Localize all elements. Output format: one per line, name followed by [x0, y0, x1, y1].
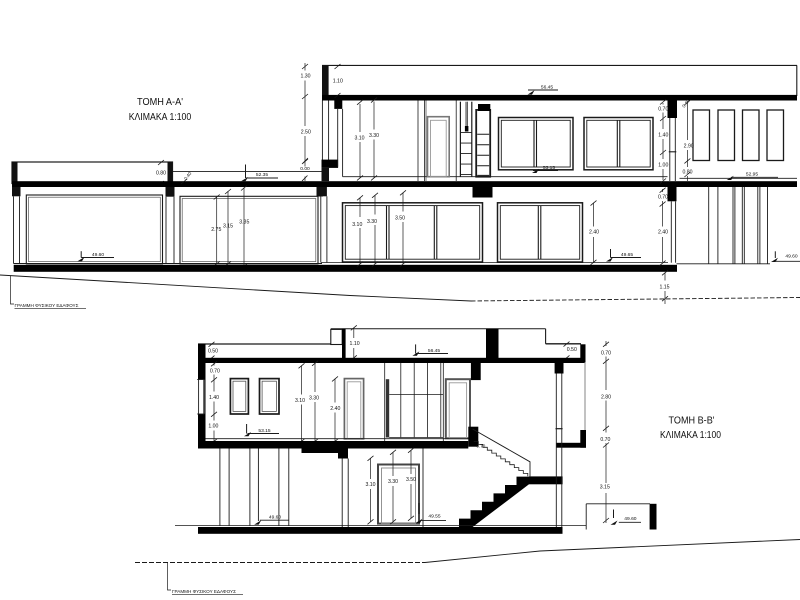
- svg-text:0.70: 0.70: [210, 368, 220, 374]
- svg-text:2.40: 2.40: [658, 229, 668, 235]
- svg-text:3.15: 3.15: [223, 223, 233, 229]
- svg-text:52.35: 52.35: [256, 172, 269, 178]
- svg-text:1.10: 1.10: [350, 341, 360, 347]
- svg-text:ΚΛΙΜΑΚΑ 1:100: ΚΛΙΜΑΚΑ 1:100: [129, 111, 192, 123]
- svg-text:ΓΡΑΜΜΗ ΦΥΣΙΚΟΥ ΕΔΑΦΟΥΣ: ΓΡΑΜΜΗ ΦΥΣΙΚΟΥ ΕΔΑΦΟΥΣ: [15, 303, 79, 308]
- svg-text:2.40: 2.40: [589, 229, 599, 235]
- svg-text:ΚΛΙΜΑΚΑ 1:100: ΚΛΙΜΑΚΑ 1:100: [660, 429, 721, 441]
- svg-text:3.30: 3.30: [367, 219, 377, 225]
- svg-text:1.40: 1.40: [658, 133, 668, 139]
- svg-text:2.90: 2.90: [684, 144, 694, 150]
- svg-text:1.00: 1.00: [208, 424, 218, 430]
- svg-text:52.95: 52.95: [746, 172, 759, 178]
- svg-text:0.00: 0.00: [300, 166, 310, 172]
- svg-text:3.35: 3.35: [239, 220, 249, 226]
- svg-text:3.30: 3.30: [369, 133, 379, 139]
- svg-text:3.10: 3.10: [354, 136, 364, 142]
- svg-text:ΤΟΜΗ Β-Β': ΤΟΜΗ Β-Β': [669, 415, 715, 427]
- svg-text:49.55: 49.55: [428, 513, 441, 519]
- svg-text:3.50: 3.50: [406, 477, 416, 483]
- svg-text:2.50: 2.50: [301, 130, 311, 136]
- svg-text:ΤΟΜΗ Α-Α': ΤΟΜΗ Α-Α': [137, 96, 183, 108]
- svg-text:0.50: 0.50: [567, 347, 577, 353]
- svg-text:49.60: 49.60: [92, 252, 105, 258]
- svg-text:49.65: 49.65: [621, 252, 634, 258]
- svg-text:3.15: 3.15: [600, 485, 610, 491]
- svg-text:3.10: 3.10: [365, 482, 375, 488]
- svg-text:49.60: 49.60: [785, 254, 798, 260]
- svg-text:56.45: 56.45: [428, 348, 441, 354]
- svg-text:0.70: 0.70: [658, 107, 668, 113]
- svg-text:1.40: 1.40: [209, 395, 219, 401]
- svg-text:ΓΡΑΜΜΗ ΦΥΣΙΚΟΥ ΕΔΑΦΟΥΣ: ΓΡΑΜΜΗ ΦΥΣΙΚΟΥ ΕΔΑΦΟΥΣ: [172, 589, 236, 594]
- svg-text:3.10: 3.10: [295, 398, 305, 404]
- svg-text:2.40: 2.40: [330, 406, 340, 412]
- svg-text:1.15: 1.15: [659, 285, 669, 291]
- svg-text:0.80: 0.80: [156, 171, 166, 177]
- svg-text:0.70: 0.70: [658, 194, 668, 200]
- svg-text:2.75: 2.75: [211, 227, 221, 233]
- svg-text:0.50: 0.50: [208, 349, 218, 355]
- svg-text:2.80: 2.80: [601, 394, 611, 400]
- svg-text:53.15: 53.15: [543, 165, 556, 171]
- svg-text:56.45: 56.45: [541, 84, 554, 90]
- svg-text:3.50: 3.50: [395, 216, 405, 222]
- svg-text:1.00: 1.00: [658, 163, 668, 169]
- svg-text:0.70: 0.70: [600, 437, 610, 443]
- svg-text:53.15: 53.15: [258, 428, 271, 434]
- svg-text:49.60: 49.60: [624, 516, 637, 522]
- svg-text:1.30: 1.30: [300, 74, 310, 80]
- svg-text:49.60: 49.60: [269, 515, 282, 521]
- svg-text:3.30: 3.30: [309, 395, 319, 401]
- svg-text:1.10: 1.10: [333, 78, 343, 84]
- svg-text:3.10: 3.10: [352, 222, 362, 228]
- svg-text:3.30: 3.30: [388, 479, 398, 485]
- svg-text:0.80: 0.80: [682, 170, 692, 176]
- svg-text:0.70: 0.70: [476, 444, 485, 449]
- svg-text:0.70: 0.70: [601, 351, 611, 357]
